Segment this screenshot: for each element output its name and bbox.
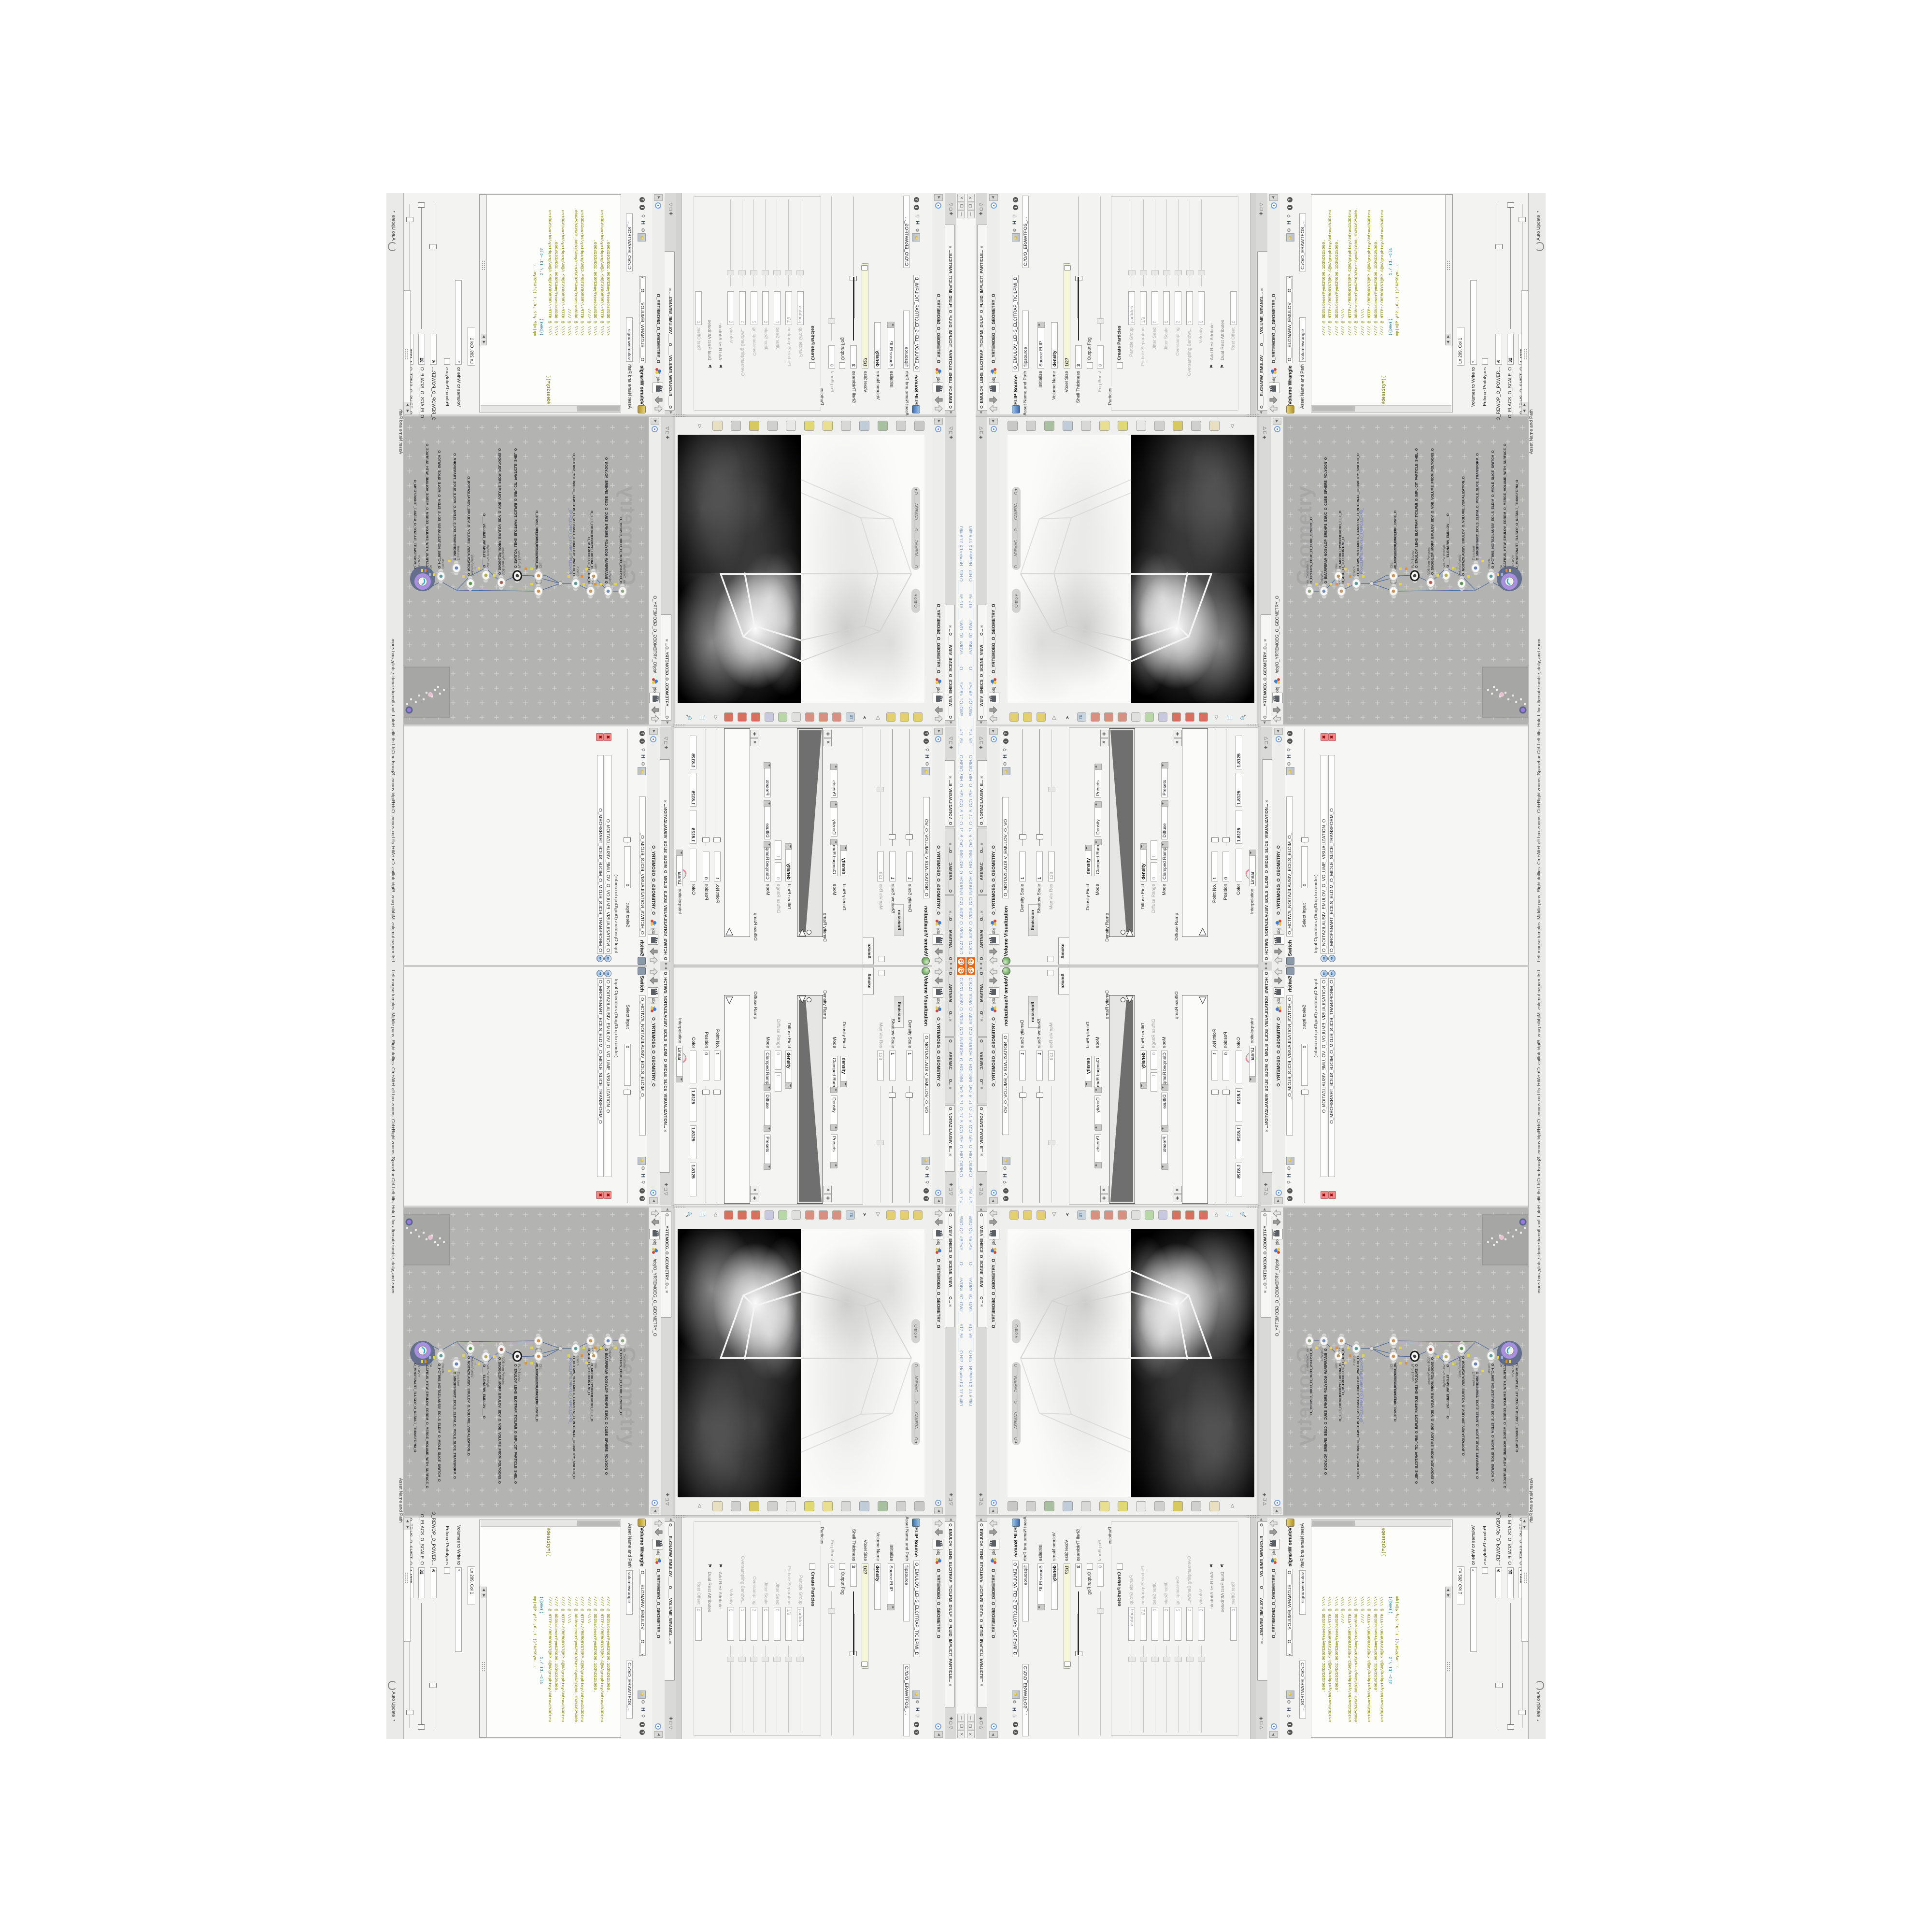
- svg-text:O_NOITAZILAUSIV_EMULOV_O_VOLUM: O_NOITAZILAUSIV_EMULOV_O_VOLUME_VISUALIZ…: [1462, 1356, 1465, 1456]
- svg-text:Clip: Clip: [1390, 1364, 1393, 1370]
- svg-text:File: File: [1335, 563, 1338, 568]
- svg-text:O_ECAFRUS_HTIW_EMULOV_EGREM_O_: O_ECAFRUS_HTIW_EMULOV_EGREM_O_MERGE_VOLU…: [1504, 1358, 1507, 1489]
- svg-text:Switch: Switch: [1488, 1364, 1491, 1373]
- svg-text:FLIP Source: FLIP Source: [1411, 1364, 1415, 1381]
- svg-text:VDB from Polygons: VDB from Polygons: [1427, 1357, 1431, 1385]
- svg-text:O_ACC_O_3L1F0O3N1RO_O: O_ACC_O_3L1F0O3N1RO_O: [1342, 537, 1345, 583]
- svg-text:O_HCTIWS_NOITAZILAUSIV_ECILS_E: O_HCTIWS_NOITAZILAUSIV_ECILS_ELDIM_O_MID…: [437, 1364, 440, 1482]
- svg-text:O_EREHPS_EBUC_O_CUBE_SPHERE_O: O_EREHPS_EBUC_O_CUBE_SPHERE_O: [1310, 1349, 1313, 1415]
- svg-text:O_EMARFERIW_NOGYLOP_EREHPS_EBU: O_EMARFERIW_NOGYLOP_EREHPS_EBUC_O_CUBE_S…: [1324, 1349, 1328, 1475]
- svg-text:Switch: Switch: [1353, 1356, 1356, 1366]
- svg-text:O____ELGNARW_EMULOV____O: O____ELGNARW_EMULOV____O: [482, 513, 485, 568]
- svg-text:Box: Box: [1338, 1349, 1341, 1354]
- svg-text:O____ELGNARW_EMULOV____O: O____ELGNARW_EMULOV____O: [1447, 513, 1450, 568]
- svg-text:Transform: Transform: [1472, 1372, 1476, 1386]
- svg-text:O_MROFSNART_ECILS_ELDIM_O_MIDL: O_MROFSNART_ECILS_ELDIM_O_MIDLE_SLICE_TR…: [1476, 453, 1479, 560]
- svg-text:Transform: Transform: [1512, 1363, 1515, 1377]
- svg-text:_RO.NO3.PETS.TRPLCS.O_SREPO.3.: _RO.NO3.PETS.TRPLCS.O_SREPO.3.ON.RO_: [568, 1356, 572, 1424]
- svg-text:Transform: Transform: [456, 546, 460, 560]
- svg-text:O_HCTIWS_NOITAZILAUSIV_ECILS_E: O_HCTIWS_NOITAZILAUSIV_ECILS_ELDIM_O_MID…: [1492, 1364, 1495, 1482]
- svg-text:VDB from Polygons: VDB from Polygons: [1427, 547, 1431, 575]
- svg-text:Transform: Transform: [1512, 555, 1515, 569]
- svg-text:O_ACC_O_3L1F0O3N1RO_O: O_ACC_O_3L1F0O3N1RO_O: [1342, 1349, 1345, 1395]
- svg-text:O_SNOGILOP_MORF_EMULOV_BDV_O_V: O_SNOGILOP_MORF_EMULOV_BDV_O_VDB_VOLUME_…: [1431, 1357, 1435, 1484]
- svg-text:O_HCTIWS_NOITAZILAUSIV_ECILS_E: O_HCTIWS_NOITAZILAUSIV_ECILS_ELDIM_O_MID…: [437, 450, 440, 568]
- svg-text:PolyWire: PolyWire: [608, 571, 611, 583]
- svg-text:Volume Wrangle: Volume Wrangle: [486, 544, 489, 568]
- svg-text:O_EREHPS_EBUC_O_CUBE_SPHERE_O: O_EREHPS_EBUC_O_CUBE_SPHERE_O: [1310, 517, 1313, 583]
- svg-text:an_CubeSphere: an_CubeSphere: [1306, 1349, 1309, 1372]
- svg-text:VDB from Polygons: VDB from Polygons: [501, 547, 505, 575]
- svg-text:an_CubeSphere: an_CubeSphere: [1306, 560, 1309, 583]
- svg-text:O_EREHPS_EBUC_O_CUBE_SPHERE_O: O_EREHPS_EBUC_O_CUBE_SPHERE_O: [619, 1349, 622, 1415]
- svg-text:O_HCTIWS_YRTEMOEG_LANRETNI_O_I: O_HCTIWS_YRTEMOEG_LANRETNI_O_INTERNAL_GE…: [572, 1356, 575, 1479]
- svg-text:O_EMULOV_LEHS_ELCITRAP_TICILPM: O_EMULOV_LEHS_ELCITRAP_TICILPMI_O_IMPLIC…: [1415, 448, 1419, 568]
- svg-text:O_MROFSNART_TLUSER_O_RESULT_TR: O_MROFSNART_TLUSER_O_RESULT_TRANSFORM_O: [413, 480, 416, 569]
- svg-text:O____ELGNARW_EMULOV____O: O____ELGNARW_EMULOV____O: [482, 1364, 485, 1419]
- svg-text:Clip: Clip: [539, 1364, 542, 1370]
- svg-text:O_SNOGILOP_MORF_EMULOV_BDV_O_V: O_SNOGILOP_MORF_EMULOV_BDV_O_VDB_VOLUME_…: [497, 448, 501, 575]
- svg-text:O_MCCRU_DY3BO3EN1RO_FILE_O: O_MCCRU_DY3BO3EN1RO_FILE_O: [590, 511, 593, 568]
- svg-text:VolumeVisualiz: VolumeVisualiz: [1458, 1356, 1462, 1378]
- svg-text:FLIP Source: FLIP Source: [517, 551, 521, 568]
- svg-text:O_ECRUB_ERUFTIC_PXF_BNCE_O: O_ECRUB_ERUFTIC_PXF_BNCE_O: [1394, 1364, 1397, 1422]
- svg-text:O_ACC_O_3L1F0O3N1RO_O: O_ACC_O_3L1F0O3N1RO_O: [587, 1349, 590, 1395]
- svg-text:O_ECRUB_ERUFTIC_PXF_BNCE_O: O_ECRUB_ERUFTIC_PXF_BNCE_O: [1394, 510, 1397, 568]
- svg-text:O_HCTIWS_NOITAZILAUSIV_ECILS_E: O_HCTIWS_NOITAZILAUSIV_ECILS_ELDIM_O_MID…: [1492, 450, 1495, 568]
- svg-text:O_EMARFERIW_NOGYLOP_EREHPS_EBU: O_EMARFERIW_NOGYLOP_EREHPS_EBUC_O_CUBE_S…: [1324, 457, 1328, 583]
- svg-text:an_CubeSphere: an_CubeSphere: [623, 560, 626, 583]
- svg-text:O_SNOGILOP_MORF_EMULOV_BDV_O_V: O_SNOGILOP_MORF_EMULOV_BDV_O_VDB_VOLUME_…: [1431, 448, 1435, 575]
- svg-text:Switch: Switch: [576, 1356, 579, 1366]
- svg-text:File: File: [1335, 1364, 1338, 1369]
- svg-text:O_ECAFRUS_HTIW_EMULOV_EGREM_O_: O_ECAFRUS_HTIW_EMULOV_EGREM_O_MERGE_VOLU…: [425, 443, 428, 574]
- svg-text:VDB from Polygons: VDB from Polygons: [501, 1357, 505, 1385]
- svg-text:O_EMARFERIW_NOGYLOP_EREHPS_EBU: O_EMARFERIW_NOGYLOP_EREHPS_EBUC_O_CUBE_S…: [604, 1349, 608, 1475]
- svg-text:VolumeVisualiz: VolumeVisualiz: [470, 554, 474, 576]
- svg-text:O____ELGNARW_EMULOV____O: O____ELGNARW_EMULOV____O: [1447, 1364, 1450, 1419]
- svg-text:Switch: Switch: [1488, 559, 1491, 568]
- svg-text:O_ECAFRUS_HTIW_EMULOV_EGREM_O_: O_ECAFRUS_HTIW_EMULOV_EGREM_O_MERGE_VOLU…: [1504, 443, 1507, 574]
- svg-text:Transform: Transform: [417, 1363, 420, 1377]
- svg-text:FLIP Source: FLIP Source: [1411, 551, 1415, 568]
- svg-text:O_SNOGILOP_MORF_EMULOV_BDV_O_V: O_SNOGILOP_MORF_EMULOV_BDV_O_VDB_VOLUME_…: [497, 1357, 501, 1484]
- svg-text:O_MROFSNART_TLUSER_O_RESULT_TR: O_MROFSNART_TLUSER_O_RESULT_TRANSFORM_O: [1516, 480, 1519, 569]
- svg-text:_RO.NO3.PETS.TRPLCS.O_SREPO.3.: _RO.NO3.PETS.TRPLCS.O_SREPO.3.ON.RO_: [1360, 508, 1364, 576]
- svg-text:O_MCCRU_DY3BO3EN1RO_FILE_O: O_MCCRU_DY3BO3EN1RO_FILE_O: [590, 1364, 593, 1421]
- svg-text:Switch: Switch: [441, 559, 444, 568]
- svg-text:O_EREHPS_EBUC_O_CUBE_SPHERE_O: O_EREHPS_EBUC_O_CUBE_SPHERE_O: [619, 517, 622, 583]
- svg-text:O_MROFSNART_ECILS_ELDIM_O_MIDL: O_MROFSNART_ECILS_ELDIM_O_MIDLE_SLICE_TR…: [453, 453, 456, 560]
- svg-text:VolumeVisualiz: VolumeVisualiz: [1458, 554, 1462, 576]
- svg-text:FLIP Source: FLIP Source: [517, 1364, 521, 1381]
- svg-text:Transform: Transform: [417, 555, 420, 569]
- svg-text:O_HCTIWS_YRTEMOEG_LANRETNI_O_I: O_HCTIWS_YRTEMOEG_LANRETNI_O_INTERNAL_GE…: [572, 453, 575, 576]
- svg-text:Volume Wrangle: Volume Wrangle: [486, 1364, 489, 1388]
- svg-text:Transform: Transform: [456, 1372, 460, 1386]
- svg-text:Switch: Switch: [576, 566, 579, 576]
- svg-text:O_EMULOV_LEHS_ELCITRAP_TICILPM: O_EMULOV_LEHS_ELCITRAP_TICILPMI_O_IMPLIC…: [513, 1364, 517, 1484]
- svg-text:O_ECRUB_ERUFTIC_PXF_BNCE_O: O_ECRUB_ERUFTIC_PXF_BNCE_O: [535, 510, 538, 568]
- svg-text:O_EMULOV_LEHS_ELCITRAP_TICILPM: O_EMULOV_LEHS_ELCITRAP_TICILPMI_O_IMPLIC…: [1415, 1364, 1419, 1484]
- svg-text:Switch: Switch: [441, 1364, 444, 1373]
- svg-text:O_MROFSNART_TLUSER_O_RESULT_TR: O_MROFSNART_TLUSER_O_RESULT_TRANSFORM_O: [1516, 1363, 1519, 1452]
- svg-text:an_CubeSphere: an_CubeSphere: [623, 1349, 626, 1372]
- svg-text:Volume Wrangle: Volume Wrangle: [1443, 544, 1446, 568]
- svg-text:PolyWire: PolyWire: [1321, 1349, 1324, 1361]
- svg-text:Clip: Clip: [1390, 562, 1393, 568]
- svg-text:O_ECRUB_ERUFTIC_PXF_BNCE_O: O_ECRUB_ERUFTIC_PXF_BNCE_O: [535, 1364, 538, 1422]
- svg-text:O_MROFSNART_ECILS_ELDIM_O_MIDL: O_MROFSNART_ECILS_ELDIM_O_MIDLE_SLICE_TR…: [453, 1372, 456, 1479]
- svg-text:VolumeVisualiz: VolumeVisualiz: [470, 1356, 474, 1378]
- svg-text:O_ACC_O_3L1F0O3N1RO_O: O_ACC_O_3L1F0O3N1RO_O: [587, 537, 590, 583]
- svg-text:Volume Wrangle: Volume Wrangle: [1443, 1364, 1446, 1388]
- svg-text:O_EMARFERIW_NOGYLOP_EREHPS_EBU: O_EMARFERIW_NOGYLOP_EREHPS_EBUC_O_CUBE_S…: [604, 457, 608, 583]
- svg-text:O_HCTIWS_YRTEMOEG_LANRETNI_O_I: O_HCTIWS_YRTEMOEG_LANRETNI_O_INTERNAL_GE…: [1357, 1356, 1360, 1479]
- svg-text:Box: Box: [1338, 578, 1341, 583]
- svg-text:Clip: Clip: [539, 562, 542, 568]
- svg-text:O_EMULOV_LEHS_ELCITRAP_TICILPM: O_EMULOV_LEHS_ELCITRAP_TICILPMI_O_IMPLIC…: [513, 448, 517, 568]
- svg-text:File: File: [594, 1364, 597, 1369]
- svg-text:O_NOITAZILAUSIV_EMULOV_O_VOLUM: O_NOITAZILAUSIV_EMULOV_O_VOLUME_VISUALIZ…: [467, 1356, 470, 1456]
- svg-text:Switch: Switch: [1353, 566, 1356, 576]
- svg-text:O_MROFSNART_ECILS_ELDIM_O_MIDL: O_MROFSNART_ECILS_ELDIM_O_MIDLE_SLICE_TR…: [1476, 1372, 1479, 1479]
- svg-text:Box: Box: [591, 578, 594, 583]
- svg-text:O_NOITAZILAUSIV_EMULOV_O_VOLUM: O_NOITAZILAUSIV_EMULOV_O_VOLUME_VISUALIZ…: [1462, 476, 1465, 576]
- svg-text:Transform: Transform: [1472, 546, 1476, 560]
- svg-text:File: File: [594, 563, 597, 568]
- svg-text:_RO.NO3.PETS.TRPLCS.O_SREPO.3.: _RO.NO3.PETS.TRPLCS.O_SREPO.3.ON.RO_: [1360, 1356, 1364, 1424]
- svg-text:PolyWire: PolyWire: [1321, 571, 1324, 583]
- svg-text:O_HCTIWS_YRTEMOEG_LANRETNI_O_I: O_HCTIWS_YRTEMOEG_LANRETNI_O_INTERNAL_GE…: [1357, 453, 1360, 576]
- svg-text:_RO.NO3.PETS.TRPLCS.O_SREPO.3.: _RO.NO3.PETS.TRPLCS.O_SREPO.3.ON.RO_: [568, 508, 572, 576]
- svg-text:PolyWire: PolyWire: [608, 1349, 611, 1361]
- svg-text:O_ECAFRUS_HTIW_EMULOV_EGREM_O_: O_ECAFRUS_HTIW_EMULOV_EGREM_O_MERGE_VOLU…: [425, 1358, 428, 1489]
- svg-text:O_NOITAZILAUSIV_EMULOV_O_VOLUM: O_NOITAZILAUSIV_EMULOV_O_VOLUME_VISUALIZ…: [467, 476, 470, 576]
- svg-text:Box: Box: [591, 1349, 594, 1354]
- svg-text:O_MROFSNART_TLUSER_O_RESULT_TR: O_MROFSNART_TLUSER_O_RESULT_TRANSFORM_O: [413, 1363, 416, 1452]
